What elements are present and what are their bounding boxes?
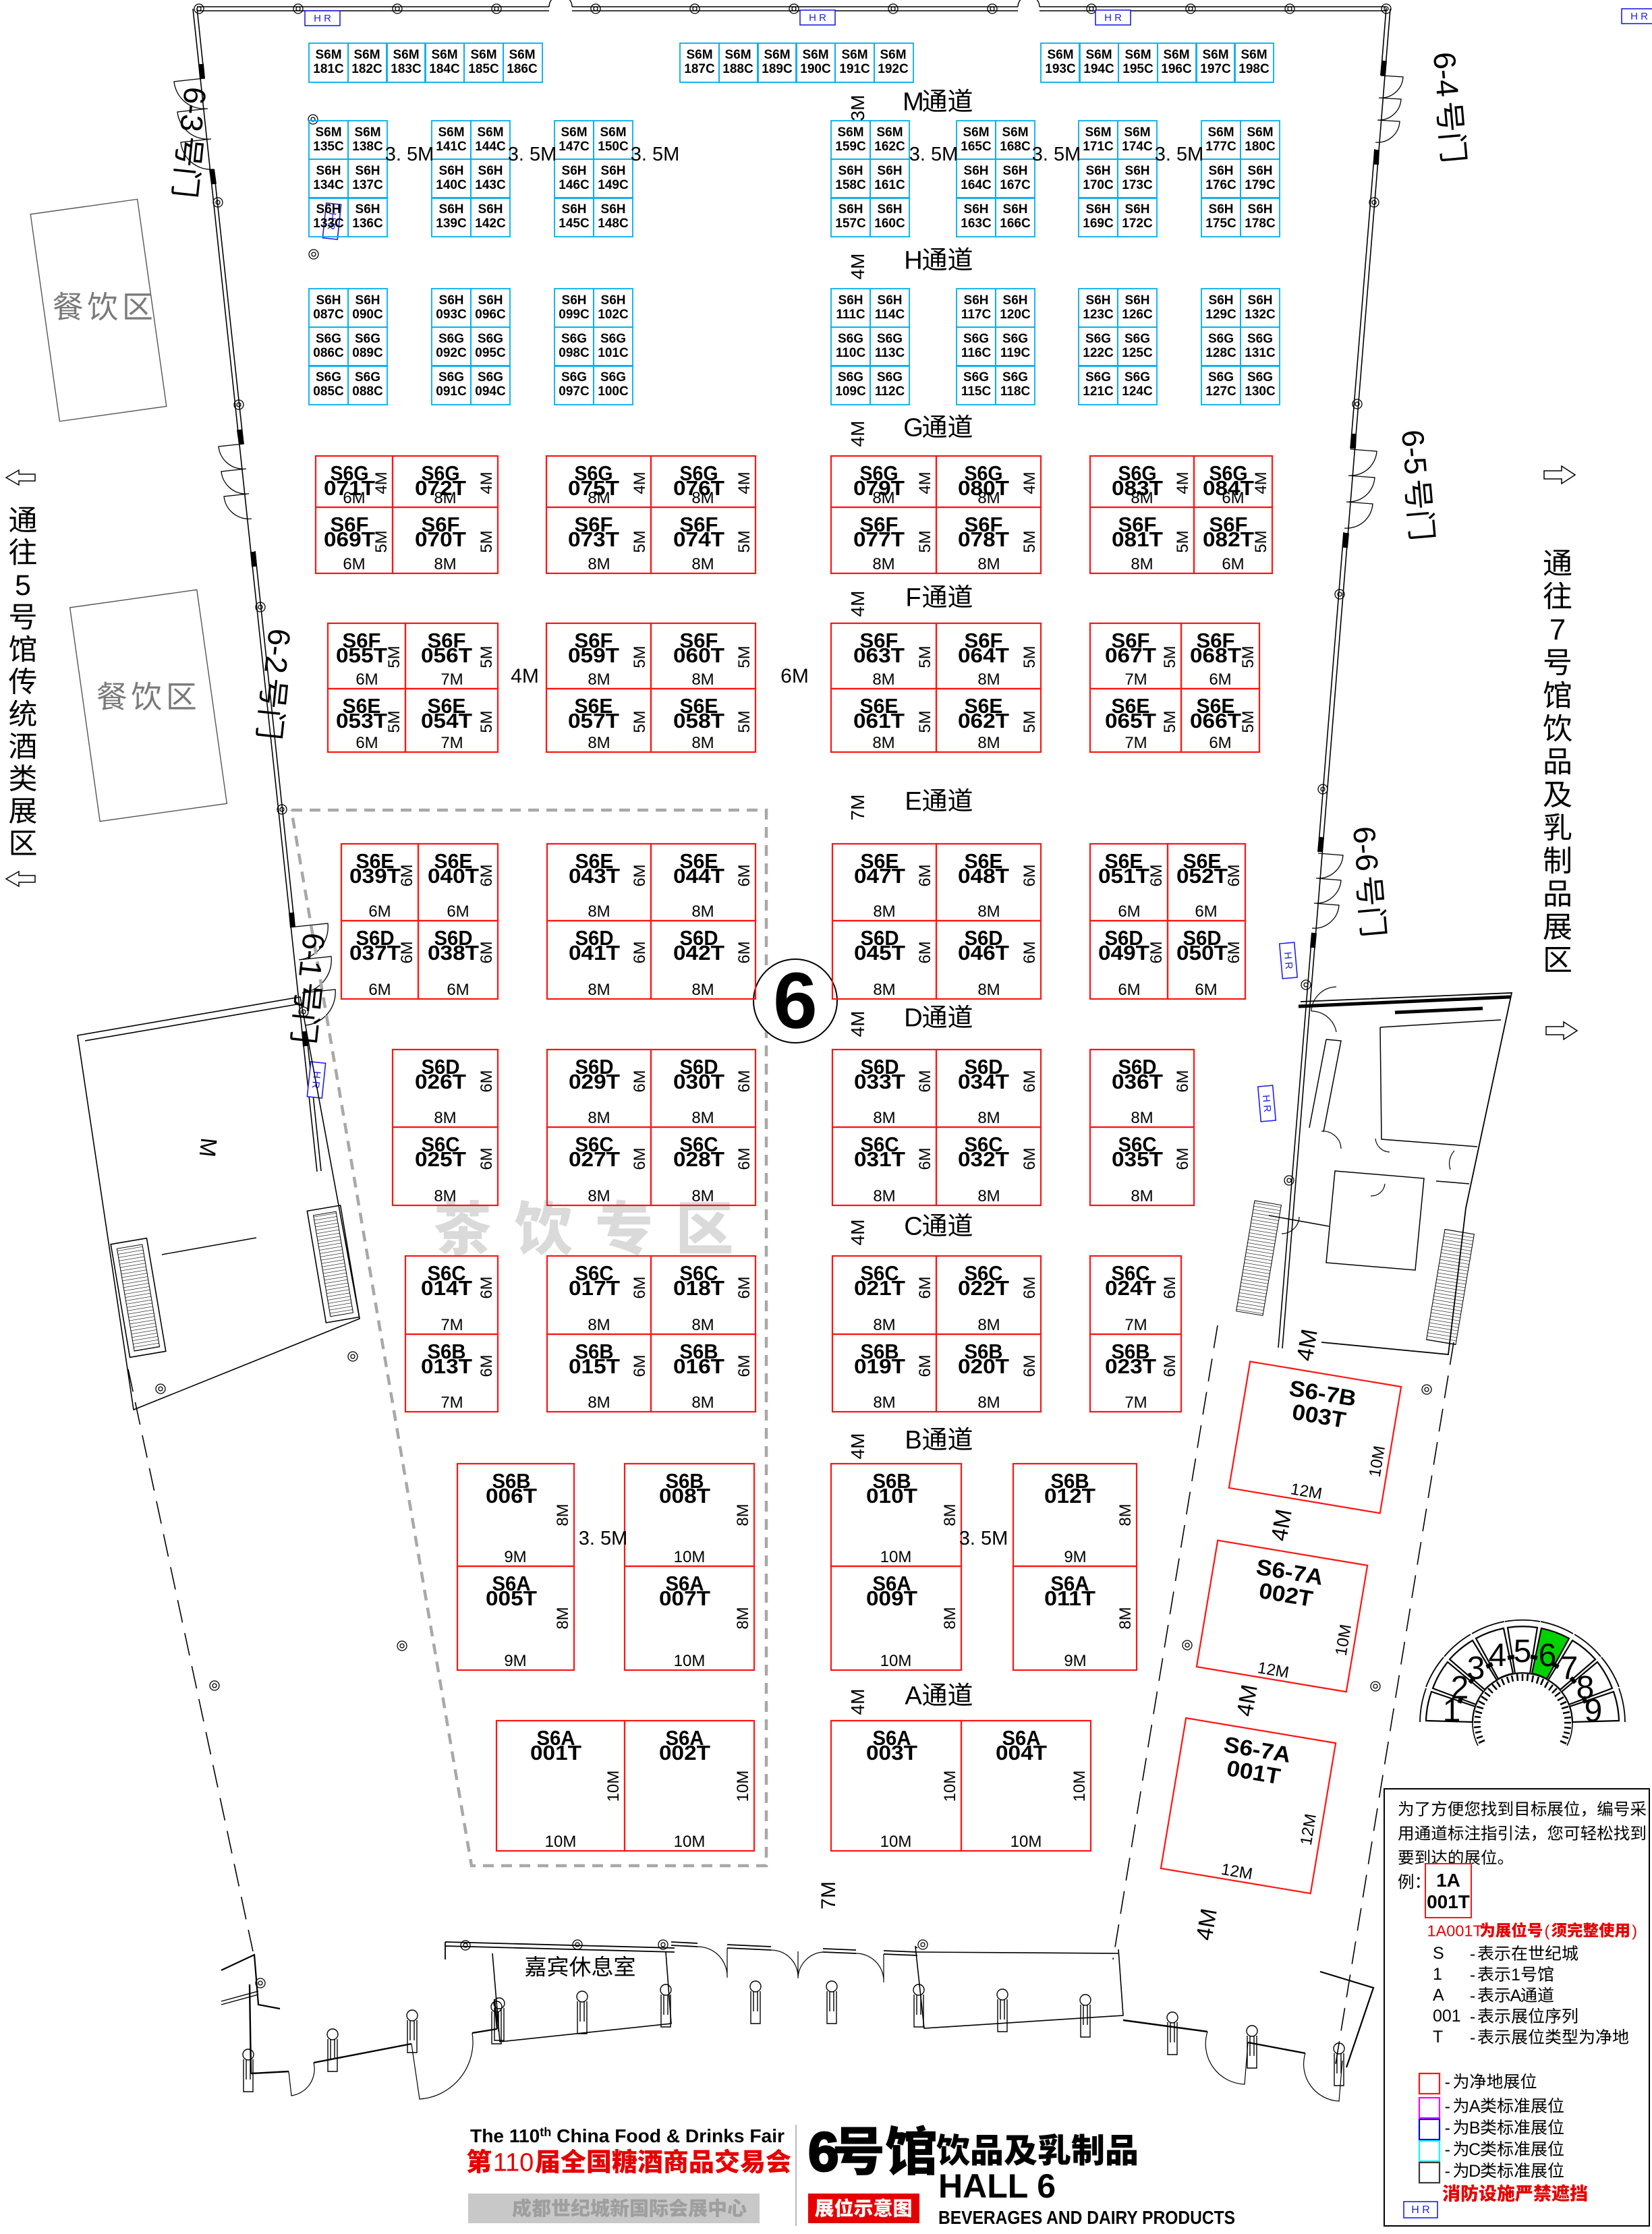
svg-text:110: 110 — [493, 2149, 534, 2177]
svg-text:5M: 5M — [478, 646, 496, 668]
svg-text:S6M: S6M — [1085, 125, 1111, 140]
svg-text:S6M: S6M — [876, 125, 903, 140]
svg-text:S6H: S6H — [1125, 202, 1150, 217]
svg-text:069T: 069T — [324, 527, 375, 551]
svg-text:127C: 127C — [1205, 384, 1236, 399]
svg-text:8M: 8M — [872, 670, 894, 689]
svg-text:4M: 4M — [735, 471, 753, 494]
svg-text:S6H: S6H — [1125, 293, 1150, 308]
svg-text:173C: 173C — [1122, 178, 1153, 192]
svg-text:170C: 170C — [1083, 178, 1114, 192]
svg-text:A: A — [1469, 2097, 1481, 2116]
svg-text:6M: 6M — [631, 864, 649, 886]
svg-text:S6M: S6M — [431, 48, 457, 62]
svg-text:041T: 041T — [569, 941, 620, 965]
svg-text:099C: 099C — [559, 308, 590, 322]
svg-text:8M: 8M — [588, 981, 610, 999]
svg-text:S6M: S6M — [1085, 48, 1112, 62]
svg-text:8M: 8M — [1116, 1503, 1135, 1526]
svg-text:8M: 8M — [1131, 1109, 1153, 1127]
svg-text:060T: 060T — [673, 643, 724, 667]
svg-text:4M: 4M — [631, 471, 649, 494]
svg-text:S6G: S6G — [1124, 332, 1150, 346]
svg-text:145C: 145C — [559, 217, 590, 231]
svg-text:181C: 181C — [313, 62, 344, 76]
svg-text:187C: 187C — [684, 62, 715, 76]
svg-text:6M: 6M — [478, 1147, 496, 1170]
svg-text:S6H: S6H — [1086, 202, 1111, 217]
svg-text:8M: 8M — [588, 1394, 610, 1412]
svg-text:7M: 7M — [847, 795, 868, 821]
svg-text:S6G: S6G — [1247, 370, 1273, 384]
svg-text:S6M: S6M — [880, 48, 906, 62]
svg-text:8M: 8M — [691, 670, 714, 689]
svg-text:5M: 5M — [1174, 530, 1192, 552]
svg-text:T: T — [1433, 2028, 1443, 2046]
svg-text:S6G: S6G — [1002, 370, 1028, 384]
svg-text:124C: 124C — [1122, 384, 1153, 399]
svg-text:149C: 149C — [598, 178, 629, 192]
svg-text:6M: 6M — [1222, 555, 1244, 573]
svg-text:6M: 6M — [735, 1070, 753, 1092]
svg-text:095C: 095C — [475, 346, 506, 360]
svg-text:H R: H R — [314, 13, 331, 24]
svg-text:7M: 7M — [440, 1316, 463, 1334]
svg-text:160C: 160C — [874, 217, 905, 231]
svg-text:S6G: S6G — [1085, 370, 1111, 384]
svg-text:6: 6 — [808, 2121, 839, 2183]
svg-text:8M: 8M — [977, 1394, 1000, 1412]
svg-text:S6M: S6M — [470, 48, 496, 62]
svg-text:S6G: S6G — [1124, 370, 1150, 384]
svg-text:6M: 6M — [631, 1147, 649, 1170]
svg-text:S6M: S6M — [353, 48, 380, 62]
svg-text:4M: 4M — [847, 1220, 868, 1246]
svg-text:4M: 4M — [511, 665, 539, 687]
svg-text:026T: 026T — [415, 1070, 466, 1093]
svg-text:6M: 6M — [916, 1070, 934, 1092]
svg-text:4M: 4M — [1174, 471, 1192, 494]
svg-text:121C: 121C — [1083, 384, 1114, 399]
svg-text:100C: 100C — [598, 384, 629, 399]
svg-text:033T: 033T — [854, 1070, 905, 1093]
svg-text:001T: 001T — [530, 1741, 581, 1765]
svg-text:E: E — [905, 788, 921, 816]
svg-text:C: C — [1469, 2140, 1481, 2159]
svg-text:8M: 8M — [434, 555, 456, 573]
svg-text:6-1: 6-1 — [292, 931, 332, 979]
svg-text:S6H: S6H — [439, 293, 464, 308]
svg-text:133C: 133C — [313, 217, 344, 231]
svg-text:6M: 6M — [735, 1276, 753, 1298]
svg-text:8M: 8M — [1116, 1607, 1135, 1629]
svg-text:194C: 194C — [1083, 62, 1114, 76]
svg-text:4M: 4M — [847, 1433, 868, 1460]
svg-text:044T: 044T — [673, 864, 724, 888]
svg-text:4M: 4M — [372, 471, 391, 494]
svg-text:015T: 015T — [569, 1354, 620, 1378]
svg-text:F: F — [905, 584, 921, 612]
svg-text:6M: 6M — [1222, 489, 1244, 507]
svg-text:8M: 8M — [691, 1394, 714, 1412]
svg-text:8M: 8M — [977, 555, 1000, 573]
svg-text:137C: 137C — [352, 178, 383, 192]
svg-text:8M: 8M — [873, 981, 895, 999]
svg-text:S6M: S6M — [1202, 48, 1228, 62]
svg-text:1: 1 — [1511, 1966, 1520, 1984]
svg-text:5M: 5M — [1161, 710, 1179, 733]
svg-text:6M: 6M — [1118, 903, 1140, 921]
svg-text:S6G: S6G — [877, 370, 903, 384]
svg-text:110C: 110C — [836, 346, 866, 360]
svg-text:019T: 019T — [854, 1354, 905, 1378]
svg-text:S6H: S6H — [878, 293, 903, 308]
svg-text:4M: 4M — [1252, 471, 1270, 494]
svg-text:8M: 8M — [873, 1394, 895, 1412]
svg-text:9M: 9M — [1064, 1652, 1086, 1670]
svg-text:6M: 6M — [478, 1276, 496, 1298]
svg-text:6M: 6M — [1209, 734, 1231, 752]
svg-text:122C: 122C — [1083, 346, 1114, 360]
svg-text:6M: 6M — [1021, 941, 1039, 963]
svg-text:063T: 063T — [853, 643, 905, 667]
svg-text:039T: 039T — [349, 864, 401, 888]
svg-text:8M: 8M — [434, 1109, 456, 1127]
svg-text:077T: 077T — [853, 527, 905, 551]
svg-text:6M: 6M — [368, 903, 391, 921]
svg-text:018T: 018T — [673, 1276, 724, 1300]
svg-text:S6H: S6H — [316, 202, 341, 217]
svg-text:6-4: 6-4 — [1427, 51, 1466, 98]
svg-text:119C: 119C — [1000, 346, 1031, 360]
svg-text:024T: 024T — [1105, 1276, 1156, 1300]
svg-text:190C: 190C — [800, 62, 831, 76]
svg-text:6M: 6M — [478, 1070, 496, 1092]
svg-text:6M: 6M — [780, 665, 809, 687]
svg-text:123C: 123C — [1083, 308, 1114, 322]
svg-text:6-5: 6-5 — [1395, 428, 1434, 476]
svg-text:8M: 8M — [872, 734, 894, 752]
svg-text:8M: 8M — [691, 1316, 714, 1334]
svg-text:S6G: S6G — [478, 332, 503, 346]
svg-text:109C: 109C — [835, 384, 866, 399]
svg-text:143C: 143C — [475, 178, 506, 192]
svg-text:6-2: 6-2 — [258, 627, 297, 675]
svg-text:164C: 164C — [961, 178, 992, 192]
svg-text:8M: 8M — [977, 1109, 1000, 1127]
svg-text:8M: 8M — [1131, 555, 1153, 573]
svg-text:S6M: S6M — [393, 48, 419, 62]
svg-text:184C: 184C — [429, 62, 460, 76]
svg-text:5: 5 — [15, 569, 31, 602]
svg-text:-: - — [1445, 2162, 1450, 2181]
svg-text:S6H: S6H — [562, 164, 587, 178]
svg-text:D: D — [904, 1004, 922, 1033]
svg-text:9M: 9M — [504, 1652, 526, 1670]
svg-text:HALL 6: HALL 6 — [938, 2167, 1056, 2205]
svg-text:136C: 136C — [352, 217, 383, 231]
svg-text:021T: 021T — [854, 1276, 905, 1300]
svg-text:8M: 8M — [691, 734, 714, 752]
svg-text:S6H: S6H — [1248, 202, 1273, 217]
svg-text:051T: 051T — [1098, 864, 1149, 888]
svg-text:S6G: S6G — [355, 332, 380, 346]
svg-text:8M: 8M — [941, 1503, 959, 1526]
svg-text:H R: H R — [1411, 2204, 1430, 2216]
svg-text:5: 5 — [1514, 1634, 1532, 1669]
svg-text:S6M: S6M — [477, 125, 503, 140]
svg-text:5M: 5M — [478, 530, 496, 552]
svg-text:167C: 167C — [1000, 178, 1031, 192]
svg-text:S6M: S6M — [1207, 125, 1234, 140]
svg-text:-: - — [1470, 1986, 1475, 2005]
svg-text:S6G: S6G — [316, 332, 341, 346]
svg-text:S6G: S6G — [838, 332, 863, 346]
svg-text:054T: 054T — [421, 709, 472, 733]
svg-text:064T: 064T — [958, 643, 1009, 667]
svg-text:S6M: S6M — [1124, 125, 1150, 140]
svg-text:8M: 8M — [1131, 1187, 1153, 1205]
svg-text:065T: 065T — [1105, 709, 1156, 733]
svg-text:S6G: S6G — [1247, 332, 1273, 346]
svg-text:046T: 046T — [958, 941, 1009, 965]
svg-text:6M: 6M — [447, 981, 469, 999]
svg-text:195C: 195C — [1122, 62, 1153, 76]
svg-text:4M: 4M — [1232, 1683, 1263, 1719]
svg-text:S6M: S6M — [1163, 48, 1189, 62]
svg-text:8M: 8M — [977, 981, 1000, 999]
svg-text:094C: 094C — [475, 384, 506, 399]
svg-text:125C: 125C — [1122, 346, 1153, 360]
svg-text:7M: 7M — [818, 1881, 840, 1910]
svg-text:(: ( — [1544, 1922, 1549, 1939]
svg-text:8M: 8M — [588, 489, 610, 507]
svg-text:10M: 10M — [880, 1833, 912, 1851]
svg-text:198C: 198C — [1238, 62, 1270, 76]
svg-text:112C: 112C — [875, 384, 905, 399]
svg-text:6M: 6M — [478, 864, 496, 886]
svg-text:4M: 4M — [847, 591, 868, 617]
svg-text:): ) — [1632, 1922, 1637, 1939]
svg-text:6M: 6M — [368, 981, 391, 999]
svg-text:6M: 6M — [1021, 1070, 1039, 1092]
svg-text:050T: 050T — [1176, 941, 1228, 965]
svg-text:S6G: S6G — [600, 370, 626, 384]
svg-text:130C: 130C — [1245, 384, 1276, 399]
svg-text:S6H: S6H — [562, 293, 587, 308]
svg-text:8M: 8M — [691, 903, 714, 921]
svg-text:S6G: S6G — [838, 370, 863, 384]
svg-text:040T: 040T — [428, 864, 479, 888]
svg-text:3: 3 — [1467, 1651, 1485, 1686]
svg-text:096C: 096C — [475, 308, 506, 322]
svg-text:011T: 011T — [1044, 1586, 1095, 1610]
svg-text:7M: 7M — [1124, 670, 1147, 689]
svg-text:S6H: S6H — [1086, 164, 1111, 178]
svg-text:031T: 031T — [854, 1147, 905, 1171]
svg-text:008T: 008T — [659, 1484, 710, 1508]
svg-text:S6M: S6M — [841, 48, 867, 62]
svg-text:191C: 191C — [839, 62, 870, 76]
svg-text:10M: 10M — [941, 1771, 959, 1802]
svg-text:8M: 8M — [588, 1316, 610, 1334]
svg-text:4M: 4M — [1266, 1508, 1297, 1543]
svg-text:S6H: S6H — [601, 164, 626, 178]
svg-text:S6M: S6M — [315, 48, 341, 62]
svg-text:5M: 5M — [631, 710, 649, 733]
svg-text:3. 5M: 3. 5M — [508, 144, 557, 165]
svg-text:S6H: S6H — [439, 164, 464, 178]
svg-text:172C: 172C — [1122, 217, 1153, 231]
svg-text:5M: 5M — [1021, 646, 1039, 668]
svg-text:S6H: S6H — [562, 202, 587, 217]
svg-text:B: B — [1469, 2119, 1481, 2138]
svg-text:003T: 003T — [866, 1741, 917, 1765]
svg-text:118C: 118C — [1000, 384, 1031, 399]
svg-text:6M: 6M — [631, 1070, 649, 1092]
svg-text:S6M: S6M — [724, 48, 751, 62]
svg-text:S6M: S6M — [354, 125, 380, 140]
svg-text:7M: 7M — [440, 1394, 463, 1412]
svg-text:6M: 6M — [735, 1147, 753, 1170]
svg-text:053T: 053T — [336, 709, 387, 733]
svg-text:055T: 055T — [336, 643, 387, 667]
svg-text:6M: 6M — [1021, 864, 1039, 886]
svg-text:S6H: S6H — [878, 202, 903, 217]
svg-text:158C: 158C — [835, 178, 866, 192]
svg-text:S6H: S6H — [964, 293, 989, 308]
svg-text:S6G: S6G — [1208, 332, 1234, 346]
svg-text:6M: 6M — [735, 1354, 753, 1377]
svg-text:6M: 6M — [631, 1354, 649, 1377]
svg-text:070T: 070T — [415, 527, 466, 551]
svg-text:038T: 038T — [428, 941, 479, 965]
svg-text:8M: 8M — [977, 670, 1000, 689]
svg-text:196C: 196C — [1161, 62, 1192, 76]
svg-text:S6H: S6H — [478, 164, 503, 178]
svg-text:059T: 059T — [568, 643, 619, 667]
svg-text:S6M: S6M — [438, 125, 464, 140]
svg-text:142C: 142C — [475, 217, 506, 231]
svg-text:150C: 150C — [598, 140, 629, 154]
svg-text:098C: 098C — [559, 346, 590, 360]
svg-text:S6G: S6G — [438, 332, 464, 346]
svg-text:H R: H R — [1260, 1094, 1273, 1112]
svg-text:146C: 146C — [559, 178, 590, 192]
svg-text:4M: 4M — [847, 421, 868, 447]
svg-text:10M: 10M — [674, 1548, 706, 1566]
svg-text:117C: 117C — [961, 308, 992, 322]
svg-text:A: A — [1433, 1986, 1444, 2005]
svg-text:8M: 8M — [873, 1187, 895, 1205]
svg-text:7M: 7M — [440, 670, 463, 689]
svg-text:5M: 5M — [631, 646, 649, 668]
svg-text:8M: 8M — [588, 734, 610, 752]
svg-text:6M: 6M — [478, 941, 496, 963]
svg-text:10M: 10M — [604, 1771, 623, 1802]
svg-text:5M: 5M — [631, 530, 649, 552]
svg-text:S6H: S6H — [601, 202, 626, 217]
svg-text:10M: 10M — [1010, 1833, 1042, 1851]
svg-text:H: H — [904, 247, 922, 275]
svg-text:073T: 073T — [568, 527, 619, 551]
svg-text:A: A — [905, 1682, 922, 1711]
svg-text:006T: 006T — [486, 1484, 537, 1508]
svg-text:1A001T: 1A001T — [1427, 1922, 1483, 1939]
svg-text:9M: 9M — [1064, 1548, 1086, 1566]
svg-text:168C: 168C — [1000, 140, 1031, 154]
svg-text:004T: 004T — [996, 1741, 1047, 1765]
svg-text:H R: H R — [1282, 951, 1294, 969]
svg-text:S6H: S6H — [478, 293, 503, 308]
svg-text:178C: 178C — [1245, 217, 1276, 231]
svg-text:6M: 6M — [1225, 864, 1243, 886]
svg-text:6-3: 6-3 — [173, 85, 213, 134]
svg-text:S6H: S6H — [1003, 164, 1028, 178]
svg-text:177C: 177C — [1205, 140, 1236, 154]
svg-text:-: - — [1445, 2140, 1450, 2159]
svg-text:186C: 186C — [507, 62, 538, 76]
svg-text:S6G: S6G — [963, 370, 989, 384]
svg-text:S6G: S6G — [877, 332, 903, 346]
svg-text:183C: 183C — [391, 62, 422, 76]
svg-text:H R: H R — [1630, 11, 1648, 22]
svg-text:140C: 140C — [436, 178, 467, 192]
svg-text:8M: 8M — [873, 903, 895, 921]
svg-text:081T: 081T — [1112, 527, 1163, 551]
svg-text:032T: 032T — [958, 1147, 1009, 1171]
svg-text:S6H: S6H — [1209, 164, 1234, 178]
svg-text:S6H: S6H — [316, 293, 341, 308]
svg-text:134C: 134C — [313, 178, 344, 192]
svg-text:141C: 141C — [436, 140, 467, 154]
svg-text:5M: 5M — [916, 710, 934, 733]
svg-text:S6H: S6H — [964, 164, 989, 178]
svg-text:6M: 6M — [1174, 1147, 1192, 1170]
svg-text:8M: 8M — [691, 489, 714, 507]
svg-text:148C: 148C — [598, 217, 629, 231]
svg-text:6M: 6M — [1161, 1276, 1179, 1298]
svg-text:016T: 016T — [673, 1354, 724, 1378]
svg-text:S6G: S6G — [478, 370, 503, 384]
svg-text:S6H: S6H — [1209, 202, 1234, 217]
svg-text:171C: 171C — [1083, 140, 1114, 154]
svg-text:3. 5M: 3. 5M — [909, 144, 959, 165]
svg-text:101C: 101C — [598, 346, 629, 360]
svg-text:5M: 5M — [735, 710, 753, 733]
svg-text:6M: 6M — [398, 941, 416, 963]
svg-text:3. 5M: 3. 5M — [959, 1528, 1008, 1549]
svg-text:1: 1 — [1433, 1965, 1442, 1984]
svg-text:5M: 5M — [1252, 530, 1270, 552]
svg-text:028T: 028T — [673, 1147, 724, 1171]
svg-text:5M: 5M — [735, 646, 753, 668]
svg-text:S6H: S6H — [1248, 293, 1273, 308]
svg-text:089C: 089C — [352, 346, 383, 360]
svg-text:8M: 8M — [691, 981, 714, 999]
svg-text:7M: 7M — [1124, 734, 1147, 752]
svg-text:067T: 067T — [1105, 643, 1156, 667]
svg-text:8M: 8M — [977, 734, 1000, 752]
svg-text:S6M: S6M — [1047, 48, 1073, 62]
svg-text:017T: 017T — [569, 1276, 620, 1300]
svg-text:5M: 5M — [1239, 710, 1257, 733]
svg-text:4M: 4M — [847, 1011, 868, 1037]
svg-text:3M: 3M — [847, 95, 868, 121]
svg-text:S6G: S6G — [316, 370, 341, 384]
svg-text:6M: 6M — [735, 864, 753, 886]
svg-text:027T: 027T — [569, 1147, 620, 1171]
